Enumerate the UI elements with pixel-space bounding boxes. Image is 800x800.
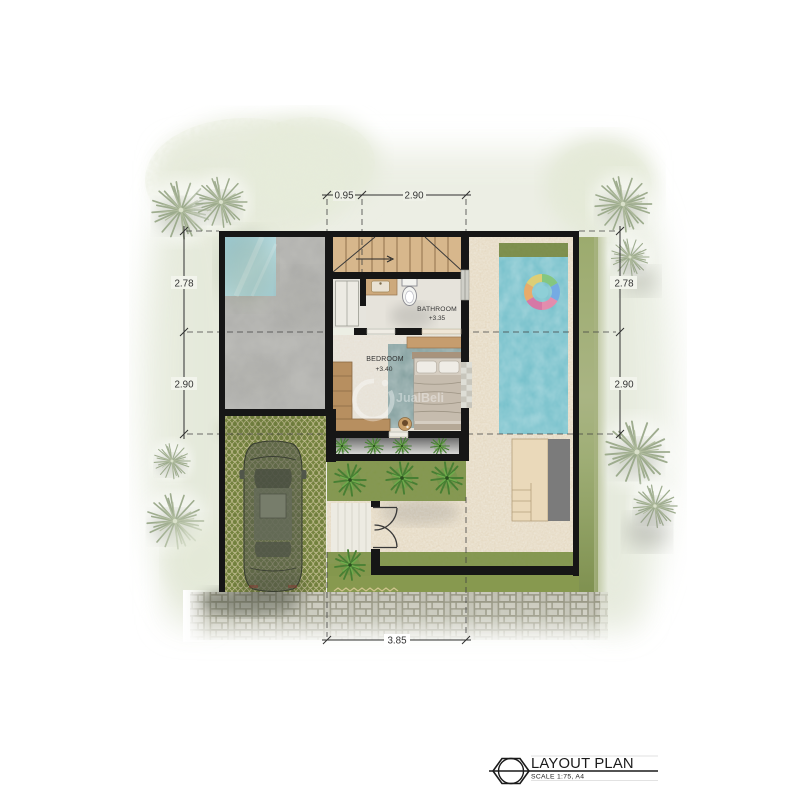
svg-text:SCALE 1:75, A4: SCALE 1:75, A4 xyxy=(531,774,584,781)
svg-text:BEDROOM: BEDROOM xyxy=(366,356,404,363)
svg-text:+3.40: +3.40 xyxy=(376,366,393,373)
svg-text:3.85: 3.85 xyxy=(387,636,407,647)
svg-text:2.78: 2.78 xyxy=(174,279,194,290)
svg-text:2.90: 2.90 xyxy=(404,191,424,202)
svg-text:JualBeli: JualBeli xyxy=(396,391,444,405)
svg-text:LAYOUT PLAN: LAYOUT PLAN xyxy=(531,756,634,772)
svg-text:0.95: 0.95 xyxy=(334,191,354,202)
svg-text:BATHROOM: BATHROOM xyxy=(417,306,457,313)
svg-text:2.78: 2.78 xyxy=(614,279,634,290)
svg-text:+3.35: +3.35 xyxy=(429,315,446,322)
svg-text:2.90: 2.90 xyxy=(614,380,634,391)
svg-text:2.90: 2.90 xyxy=(174,380,194,391)
